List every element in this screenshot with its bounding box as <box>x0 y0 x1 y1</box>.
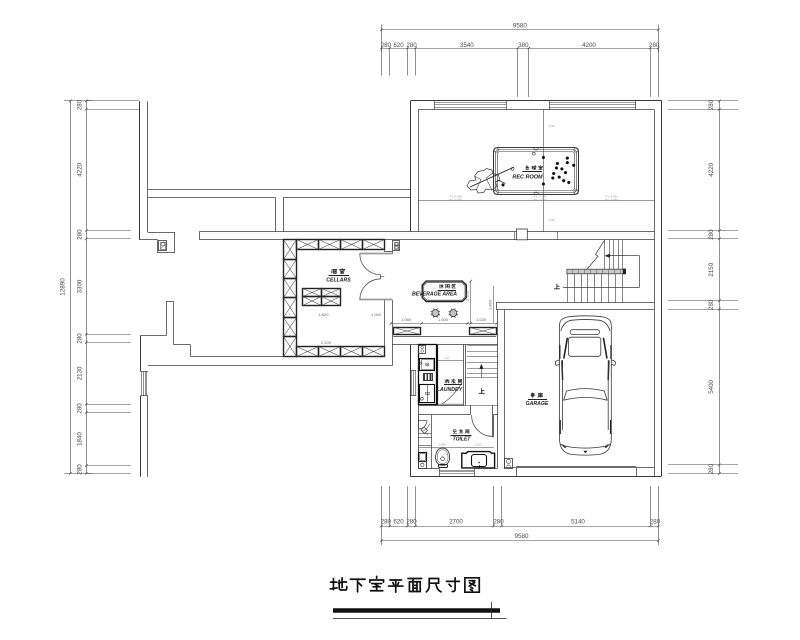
svg-text:3300: 3300 <box>76 279 83 293</box>
svg-text:1.050: 1.050 <box>401 317 412 322</box>
svg-text:280: 280 <box>76 464 83 475</box>
svg-text:4220: 4220 <box>708 162 715 176</box>
svg-text:3540: 3540 <box>460 42 474 49</box>
svg-text:9580: 9580 <box>514 533 529 540</box>
svg-text:1.940: 1.940 <box>371 312 382 317</box>
svg-text:620: 620 <box>393 42 404 49</box>
svg-text:4220: 4220 <box>76 162 83 176</box>
svg-text:1.850: 1.850 <box>487 299 492 310</box>
svg-text:280: 280 <box>76 333 83 344</box>
svg-text:B1 -3.950: B1 -3.950 <box>606 198 619 202</box>
svg-text:280: 280 <box>406 519 417 526</box>
svg-text:280: 280 <box>708 229 715 240</box>
svg-text:280: 280 <box>708 299 715 310</box>
svg-text:1.350: 1.350 <box>465 290 470 301</box>
svg-text:1.020: 1.020 <box>476 317 487 322</box>
svg-text:5140: 5140 <box>571 519 585 526</box>
svg-text:2700: 2700 <box>449 519 463 526</box>
svg-text:B1 -3.950: B1 -3.950 <box>534 198 547 202</box>
svg-text:280: 280 <box>708 463 715 474</box>
svg-text:1.600: 1.600 <box>438 317 449 322</box>
svg-text:280: 280 <box>649 42 660 49</box>
svg-text:1.2: 1.2 <box>444 356 449 360</box>
svg-text:12890: 12890 <box>60 278 67 296</box>
svg-text:280: 280 <box>650 519 661 526</box>
svg-text:1.50: 1.50 <box>549 124 555 128</box>
svg-text:TOILET: TOILET <box>453 437 472 443</box>
svg-text:280: 280 <box>76 99 83 110</box>
svg-text:B1 -3.950: B1 -3.950 <box>450 198 463 202</box>
svg-text:REC ROOM: REC ROOM <box>512 175 543 181</box>
svg-text:280: 280 <box>76 403 83 414</box>
svg-text:280: 280 <box>406 42 417 49</box>
svg-text:280: 280 <box>708 99 715 110</box>
svg-text:280: 280 <box>381 519 392 526</box>
svg-text:1840: 1840 <box>76 432 83 446</box>
svg-text:1.50: 1.50 <box>549 218 555 222</box>
svg-text:GARAGE: GARAGE <box>526 401 549 407</box>
svg-text:280: 280 <box>381 42 392 49</box>
svg-text:2.100: 2.100 <box>321 340 332 345</box>
svg-text:380: 380 <box>518 42 529 49</box>
svg-text:1.200: 1.200 <box>474 443 482 447</box>
svg-text:5400: 5400 <box>708 379 715 393</box>
svg-text:2150: 2150 <box>708 262 715 276</box>
svg-text:620: 620 <box>393 519 404 526</box>
svg-text:4200: 4200 <box>582 42 596 49</box>
svg-text:2130: 2130 <box>76 366 83 380</box>
svg-text:1.620: 1.620 <box>318 312 329 317</box>
svg-text:BEVERAGE AREA: BEVERAGE AREA <box>412 292 457 298</box>
svg-text:1.560: 1.560 <box>438 443 446 447</box>
svg-text:280: 280 <box>493 519 504 526</box>
svg-text:CELLARS: CELLARS <box>326 278 351 284</box>
svg-text:280: 280 <box>76 229 83 240</box>
svg-text:9580: 9580 <box>513 23 528 30</box>
